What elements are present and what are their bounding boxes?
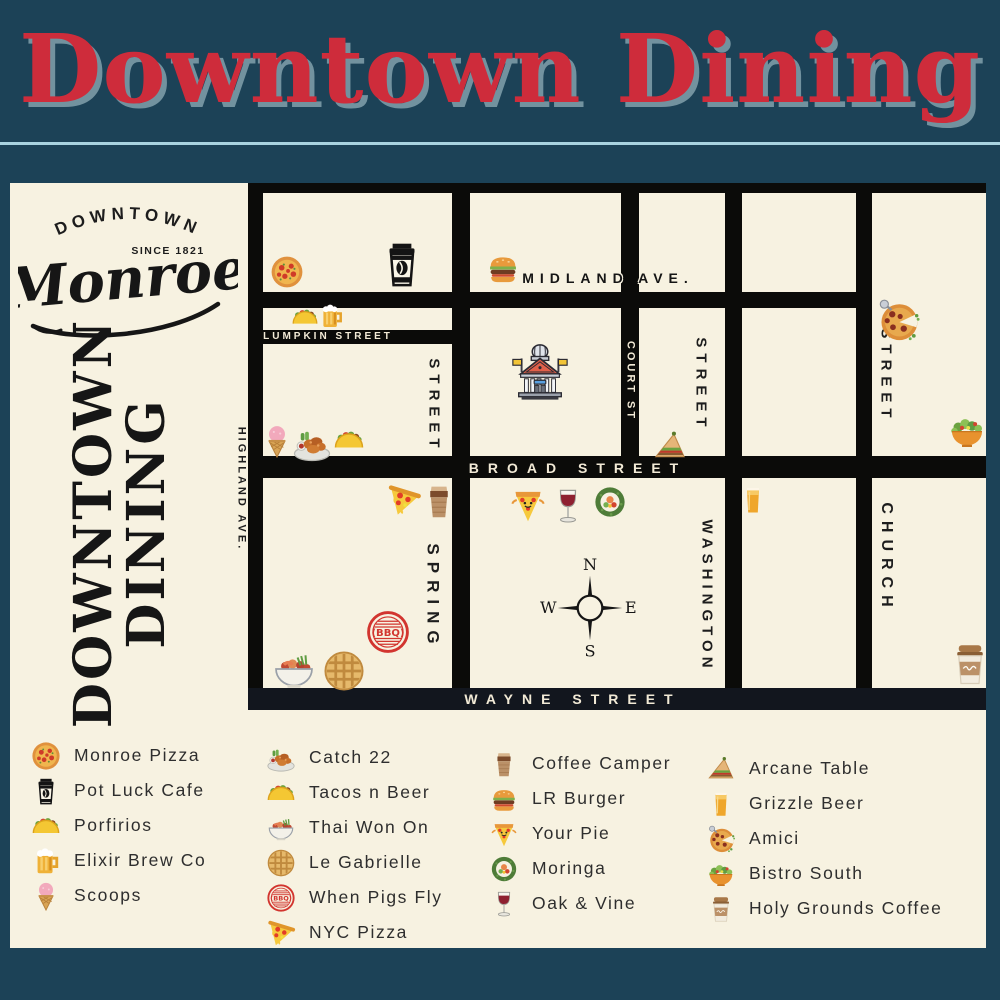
- marker-grizzle-beer: [737, 484, 769, 516]
- legend-item: Elixir Brew Co: [31, 843, 206, 878]
- marker-oak-and-vine: [548, 486, 588, 526]
- whole-pizza-icon: [31, 741, 61, 771]
- street-label-lumpkin-street: LUMPKIN STREET: [263, 332, 393, 342]
- legend-item: Coffee Camper: [489, 746, 671, 781]
- potluck-cup-icon: [31, 776, 61, 806]
- legend-item: Your Pie: [489, 816, 671, 851]
- street-top-edge: [248, 183, 986, 193]
- sidebar-title: DOWNTOWN DINING: [67, 318, 173, 728]
- legend-item: Catch 22: [266, 740, 443, 775]
- compass-north-label: N: [583, 556, 597, 574]
- bbq-stamp-icon: (BBQ): [365, 609, 411, 655]
- street-label-spring-street: SPRING: [425, 543, 442, 650]
- compass-south-label: S: [584, 641, 595, 660]
- salad-bowl-icon: [947, 411, 987, 451]
- street-label-washington-street: WASHINGTON: [700, 519, 715, 672]
- marker-courthouse: [509, 341, 571, 403]
- street-washington-vertical: [725, 183, 742, 710]
- beer-mug-icon: [31, 846, 61, 876]
- legend-item: Monroe Pizza: [31, 738, 206, 773]
- street-spring-vertical: [452, 183, 470, 710]
- legend-item: Tacos n Beer: [266, 775, 443, 810]
- marker-coffee-camper: [419, 481, 459, 521]
- marker-amici: [875, 297, 921, 343]
- yourpie-slice-icon: [489, 819, 519, 849]
- sidebar-title-line2: DINING: [120, 318, 173, 728]
- marker-monroe-pizza: [270, 255, 304, 289]
- legend-item-label: Grizzle Beer: [749, 793, 864, 814]
- legend-item-label: Amici: [749, 828, 800, 849]
- compass-east-label: E: [625, 598, 637, 617]
- marker-nyc-pizza: [386, 482, 422, 518]
- beer-mug-icon: [318, 303, 345, 330]
- street-label-spring-street-upper: STREET: [427, 358, 442, 453]
- taco-icon: [31, 811, 61, 841]
- waffle-icon: [266, 848, 296, 878]
- legend-item: Moringa: [489, 851, 671, 886]
- sidebar-title-line1: DOWNTOWN: [67, 318, 120, 728]
- legend-item: Holy Grounds Coffee: [706, 891, 943, 926]
- marker-when-pigs-fly: (BBQ): [365, 609, 411, 655]
- whole-pizza-icon: [270, 255, 304, 289]
- legend-item-label: Pot Luck Cafe: [74, 780, 205, 801]
- marker-elixir-brew-co: [318, 303, 345, 330]
- legend-item: Arcane Table: [706, 751, 943, 786]
- logo-arc-text: DOWNTOWN: [52, 204, 204, 239]
- marker-tacos-n-beer: [333, 424, 365, 456]
- page-title: Downtown Dining: [0, 14, 1000, 125]
- legend-item-label: Monroe Pizza: [74, 745, 200, 766]
- holy-cup-icon: [946, 640, 994, 688]
- nyc-slice-icon: [386, 482, 422, 518]
- marker-catch-22: [292, 423, 332, 463]
- legend-item-label: Arcane Table: [749, 758, 870, 779]
- marker-porfirios: [291, 303, 319, 331]
- compass-west-label: W: [540, 598, 557, 617]
- legend-item: NYC Pizza: [266, 915, 443, 950]
- thai-bowl-icon: [271, 646, 317, 692]
- legend-item-label: Tacos n Beer: [309, 782, 430, 803]
- potluck-cup-icon: [377, 239, 427, 289]
- legend-item: Thai Won On: [266, 810, 443, 845]
- street-label-washington-street-upper: STREET: [694, 337, 709, 432]
- legend-column-3: Coffee Camper LR Burger Your Pie Moringa…: [489, 746, 671, 921]
- legend-item-label: Scoops: [74, 885, 142, 906]
- icecream-icon: [31, 881, 61, 911]
- camper-cup-icon: [489, 749, 519, 779]
- nyc-slice-icon: [266, 918, 296, 948]
- burger-icon: [489, 784, 519, 814]
- thai-bowl-icon: [266, 813, 296, 843]
- legend-item: Amici: [706, 821, 943, 856]
- legend-item: Grizzle Beer: [706, 786, 943, 821]
- marker-bistro-south: [947, 411, 987, 451]
- legend-item-label: Le Gabrielle: [309, 852, 423, 873]
- beer-glass-icon: [706, 789, 736, 819]
- yourpie-slice-icon: [508, 485, 548, 525]
- marker-scoops: [260, 424, 294, 458]
- wine-glass-icon: [548, 486, 588, 526]
- wings-plate-icon: [292, 423, 332, 463]
- legend-item: Le Gabrielle: [266, 845, 443, 880]
- marker-lr-burger: [485, 250, 521, 286]
- wine-glass-icon: [489, 889, 519, 919]
- legend-item: LR Burger: [489, 781, 671, 816]
- legend-item-label: Coffee Camper: [532, 753, 671, 774]
- salad-bowl-icon: [706, 859, 736, 889]
- camper-cup-icon: [419, 481, 459, 521]
- holy-cup-icon: [706, 894, 736, 924]
- sandwich-icon: [652, 428, 688, 464]
- legend-item-label: Thai Won On: [309, 817, 429, 838]
- street-label-wayne-street: WAYNE STREET: [464, 692, 681, 706]
- amici-pizza-icon: [706, 824, 736, 854]
- svg-text:(BBQ): (BBQ): [270, 894, 292, 902]
- marker-le-gabrielle: [322, 649, 366, 693]
- taco-icon: [266, 778, 296, 808]
- legend-item: Porfirios: [31, 808, 206, 843]
- legend-item-label: Elixir Brew Co: [74, 850, 206, 871]
- legend-item: Pot Luck Cafe: [31, 773, 206, 808]
- legend-item-label: Holy Grounds Coffee: [749, 898, 943, 919]
- street-court-vertical: [621, 183, 639, 478]
- legend-column-1: Monroe Pizza Pot Luck Cafe Porfirios Eli…: [31, 738, 206, 913]
- legend-item-label: Porfirios: [74, 815, 153, 836]
- taco-icon: [333, 424, 365, 456]
- svg-text:DOWNTOWN: DOWNTOWN: [52, 204, 204, 239]
- page-background: Downtown Dining DOWNTOWN SINCE 1821 Monr…: [0, 0, 1000, 1000]
- street-church-vertical: [856, 183, 872, 710]
- street-label-highland-ave: HIGHLAND AVE.: [236, 427, 247, 552]
- street-label-midland-ave: MIDLAND AVE.: [522, 271, 694, 285]
- waffle-icon: [322, 649, 366, 693]
- marker-pot-luck-cafe: [377, 239, 427, 289]
- marker-your-pie: [508, 485, 548, 525]
- bbq-stamp-icon: (BBQ): [266, 883, 296, 913]
- legend-column-4: Arcane Table Grizzle Beer Amici Bistro S…: [706, 751, 943, 926]
- legend-item-label: Moringa: [532, 858, 606, 879]
- title-divider-line: [0, 142, 1000, 145]
- marker-arcane-table: [652, 428, 688, 464]
- sushi-icon: [489, 854, 519, 884]
- beer-glass-icon: [737, 484, 769, 516]
- compass-rose: N S W E: [539, 556, 641, 660]
- legend-item-label: Your Pie: [532, 823, 610, 844]
- street-label-court-st: COURT ST: [625, 341, 636, 421]
- legend-item-label: Oak & Vine: [532, 893, 636, 914]
- legend-item: (BBQ) When Pigs Fly: [266, 880, 443, 915]
- marker-holy-grounds-coffee: [946, 640, 994, 688]
- street-label-church-street: CHURCH: [878, 502, 894, 613]
- icecream-icon: [260, 424, 294, 458]
- legend-item-label: When Pigs Fly: [309, 887, 443, 908]
- legend-item: Oak & Vine: [489, 886, 671, 921]
- marker-thai-won-on: [271, 646, 317, 692]
- sushi-icon: [592, 484, 628, 520]
- sandwich-icon: [706, 754, 736, 784]
- svg-text:(BBQ): (BBQ): [371, 628, 404, 639]
- burger-icon: [485, 250, 521, 286]
- taco-icon: [291, 303, 319, 331]
- legend-item: Scoops: [31, 878, 206, 913]
- legend-item-label: Catch 22: [309, 747, 392, 768]
- amici-pizza-icon: [875, 297, 921, 343]
- courthouse-icon: [509, 341, 571, 403]
- legend-item-label: Bistro South: [749, 863, 864, 884]
- legend-item-label: LR Burger: [532, 788, 626, 809]
- legend-item: Bistro South: [706, 856, 943, 891]
- legend-item-label: NYC Pizza: [309, 922, 408, 943]
- marker-moringa: [592, 484, 628, 520]
- legend-column-2: Catch 22 Tacos n Beer Thai Won On Le Gab…: [266, 740, 443, 950]
- wings-plate-icon: [266, 743, 296, 773]
